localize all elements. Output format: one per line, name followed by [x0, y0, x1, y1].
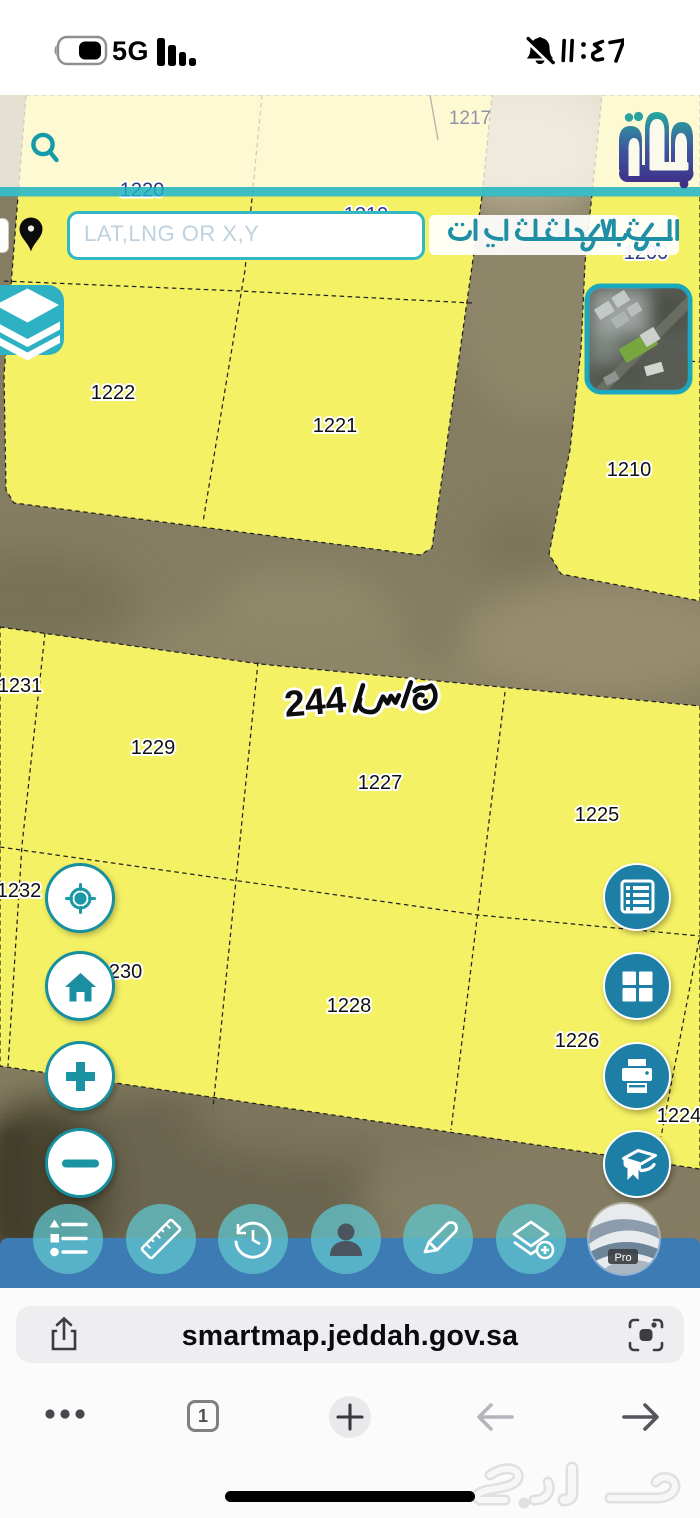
svg-text:1221: 1221 [313, 415, 358, 437]
svg-text:1227: 1227 [358, 772, 403, 794]
svg-text:244: 244 [283, 679, 348, 725]
svg-text:1228: 1228 [327, 995, 372, 1017]
svg-text:1226: 1226 [555, 1030, 600, 1052]
svg-text:1217: 1217 [449, 108, 491, 129]
svg-text:1231: 1231 [0, 675, 42, 697]
svg-text:Pro: Pro [614, 1252, 631, 1264]
svg-text:1225: 1225 [575, 804, 620, 826]
svg-text:1210: 1210 [607, 459, 652, 481]
svg-text:1229: 1229 [131, 737, 176, 759]
svg-text:1232: 1232 [0, 880, 41, 902]
svg-text:1222: 1222 [91, 382, 136, 404]
